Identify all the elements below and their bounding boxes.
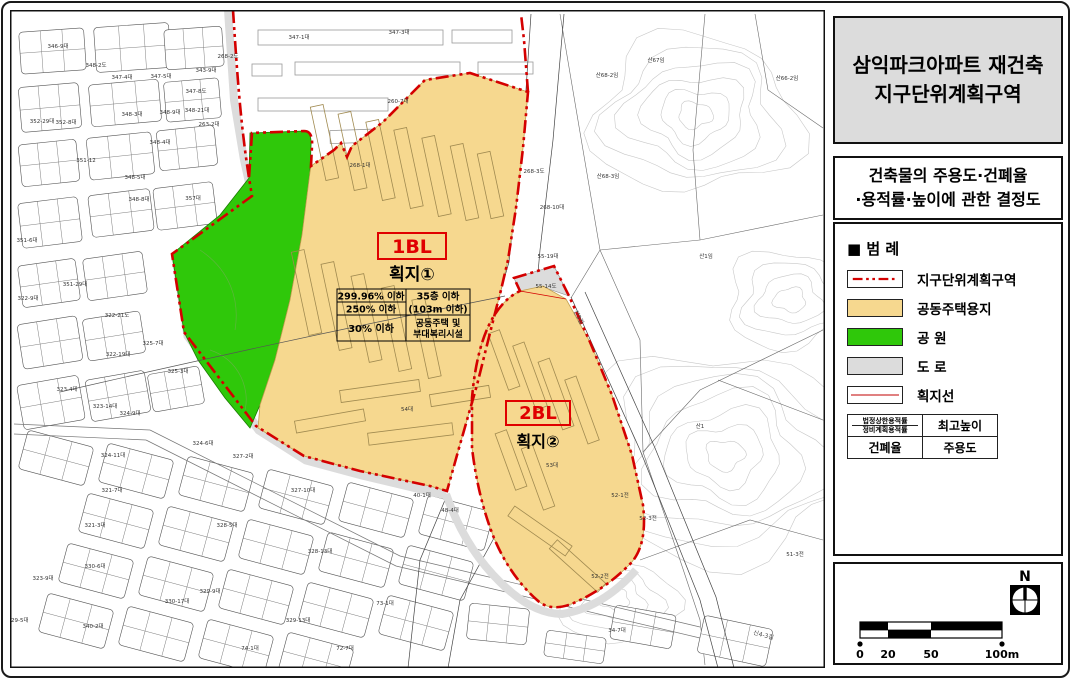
svg-text:330-6대: 330-6대 [84,562,105,570]
svg-text:348-8대: 348-8대 [128,195,149,203]
svg-text:327-10대: 327-10대 [291,486,316,494]
block1-code: 1BL [392,236,432,258]
decision-line-1: 건축물의 주용도·건폐율 [869,164,1028,188]
scale-0: 0 [856,648,864,661]
title-box: 삼익파크아파트 재건축 지구단위계획구역 [833,16,1063,144]
svg-text:74-1대: 74-1대 [241,644,259,652]
svg-text:51-3전: 51-3전 [786,550,804,558]
block1-bcr: 30% 이하 [348,322,395,335]
svg-text:72-7대: 72-7대 [336,644,354,652]
svg-text:55-14도: 55-14도 [535,283,556,290]
legend-key-maxheight: 최고높이 [923,415,998,437]
block1-height-1: 35층 이하 [417,291,460,303]
svg-text:268-10대: 268-10대 [540,203,565,211]
svg-text:268-2도: 268-2도 [217,53,238,60]
north-arrow-icon: N [1010,569,1040,615]
legend-label-park: 공 원 [917,327,947,347]
legend-item-parcel-line: 획지선 [847,385,1049,405]
svg-text:325-7대: 325-7대 [142,339,163,347]
svg-text:53대: 53대 [546,461,558,469]
svg-text:328-5대: 328-5대 [216,521,237,529]
svg-text:330-17대: 330-17대 [165,597,190,605]
block1-use-1: 공동주택 및 [416,317,461,329]
decision-line-2: ·용적률·높이에 관한 결정도 [855,188,1040,212]
svg-text:산68-2임: 산68-2임 [596,71,619,79]
svg-text:산68-3임: 산68-3임 [597,172,620,180]
title-line-1: 삼익파크아파트 재건축 [853,51,1044,80]
svg-text:327-2대: 327-2대 [232,452,253,460]
svg-text:348-5대: 348-5대 [124,173,145,181]
svg-text:322-19대: 322-19대 [106,350,131,358]
block2-code: 2BL [519,403,557,424]
legend-label-district-boundary: 지구단위계획구역 [917,269,1016,289]
svg-text:52-1전: 52-1전 [611,491,629,499]
park-swatch [847,328,903,346]
svg-text:263-2대: 263-2대 [198,120,219,128]
svg-text:322-21도: 322-21도 [105,312,130,319]
legend-key-use: 주용도 [923,437,998,459]
svg-text:324-9대: 324-9대 [119,409,140,417]
svg-text:347-5대: 347-5대 [150,72,171,80]
block1-parcel: 획지① [389,265,435,285]
residential-swatch [847,299,903,317]
svg-text:348-21대: 348-21대 [185,106,210,114]
svg-text:348-3대: 348-3대 [121,110,142,118]
scale-20: 20 [880,648,896,661]
north-label: N [1019,569,1031,585]
svg-text:328-13대: 328-13대 [308,547,333,555]
svg-text:347-1대: 347-1대 [288,33,309,41]
district-boundary-swatch [847,270,903,288]
svg-text:321-7대: 321-7대 [101,486,122,494]
legend-item-road: 도 로 [847,356,1049,376]
svg-text:348-9대: 348-9대 [159,108,180,116]
svg-text:73-1대: 73-1대 [376,599,394,607]
svg-text:346-9대: 346-9대 [47,42,68,50]
decision-title-box: 건축물의 주용도·건폐율 ·용적률·높이에 관한 결정도 [833,156,1063,220]
plan-map: 347-1대347-3대346-9대348-2도347-4대347-5대343-… [10,10,825,668]
svg-text:323-9대: 323-9대 [32,574,53,582]
svg-text:산67임: 산67임 [647,56,664,64]
legend-label-residential: 공동주택용지 [917,298,992,318]
svg-text:357대: 357대 [185,194,201,202]
legend-label-road: 도 로 [917,356,947,376]
scale-100m: 100m [985,648,1019,661]
svg-text:산1임: 산1임 [699,252,713,260]
svg-text:54대: 54대 [401,405,413,413]
scale-50: 50 [923,648,939,661]
svg-text:322-9대: 322-9대 [17,294,38,302]
block1-height-2: (103m 이하) [408,304,467,316]
svg-text:352-8대: 352-8대 [55,118,76,126]
svg-text:351-29대: 351-29대 [63,280,88,288]
legend-item-district-boundary: 지구단위계획구역 [847,269,1049,289]
svg-text:52-3전: 52-3전 [639,514,657,522]
legend-annotation-key: 법정상한용적률 정비계획용적률 최고높이 건폐율 주용도 [847,414,998,459]
road-swatch [847,357,903,375]
svg-text:321-3대: 321-3대 [84,521,105,529]
block1-use-2: 부대복리시설 [413,328,463,340]
scale-bar: 0 20 50 100m [856,622,1019,661]
svg-text:329-13대: 329-13대 [286,616,311,624]
parcel-line-swatch [847,386,903,404]
legend-key-far: 법정상한용적률 정비계획용적률 [848,415,923,437]
svg-text:324-6대: 324-6대 [192,439,213,447]
legend-label-parcel-line: 획지선 [917,385,954,405]
svg-text:40-1대: 40-1대 [413,491,431,499]
title-line-2: 지구단위계획구역 [874,80,1021,109]
svg-text:268-3도: 268-3도 [523,168,544,175]
svg-text:347-4대: 347-4대 [111,73,132,81]
svg-text:산1: 산1 [696,422,705,430]
svg-text:352-29대: 352-29대 [30,117,55,125]
svg-text:343-9대: 343-9대 [195,66,216,74]
svg-text:34-7대: 34-7대 [608,626,626,634]
legend: ■ 범 례 지구단위계획구역 공동주택용지 공 원 도 로 획지선 법정상한용적… [833,222,1063,556]
svg-text:348-2도: 348-2도 [85,62,106,69]
svg-text:325-3대: 325-3대 [167,367,188,375]
svg-text:340-2대: 340-2대 [82,622,103,630]
legend-heading: ■ 범 례 [847,238,1049,259]
legend-item-residential: 공동주택용지 [847,298,1049,318]
svg-text:324-11대: 324-11대 [101,451,126,459]
block1-far-upper: 299.96% 이하 [338,291,405,303]
svg-text:48-4대: 48-4대 [441,506,459,514]
svg-text:323-4대: 323-4대 [56,385,77,393]
svg-text:323-14대: 323-14대 [93,402,118,410]
svg-text:348-4대: 348-4대 [149,138,170,146]
svg-text:52-2전: 52-2전 [591,572,609,580]
block2-parcel: 획지② [517,432,560,451]
svg-text:260-7대: 260-7대 [387,97,408,105]
svg-text:329-9대: 329-9대 [199,587,220,595]
svg-text:351-12: 351-12 [76,158,95,164]
svg-text:산66-2임: 산66-2임 [776,74,799,82]
scale-and-north-box: N 0 20 50 100m [833,562,1063,665]
svg-text:329-5대: 329-5대 [10,616,29,624]
svg-text:351-6대: 351-6대 [16,236,37,244]
svg-text:347-8도: 347-8도 [185,88,206,95]
legend-item-park: 공 원 [847,327,1049,347]
legend-key-bcr: 건폐율 [848,437,923,459]
svg-text:347-3대: 347-3대 [388,28,409,36]
svg-text:268-1대: 268-1대 [349,161,370,169]
block1-far-lower: 250% 이하 [346,304,396,316]
svg-text:55-19대: 55-19대 [537,252,558,260]
